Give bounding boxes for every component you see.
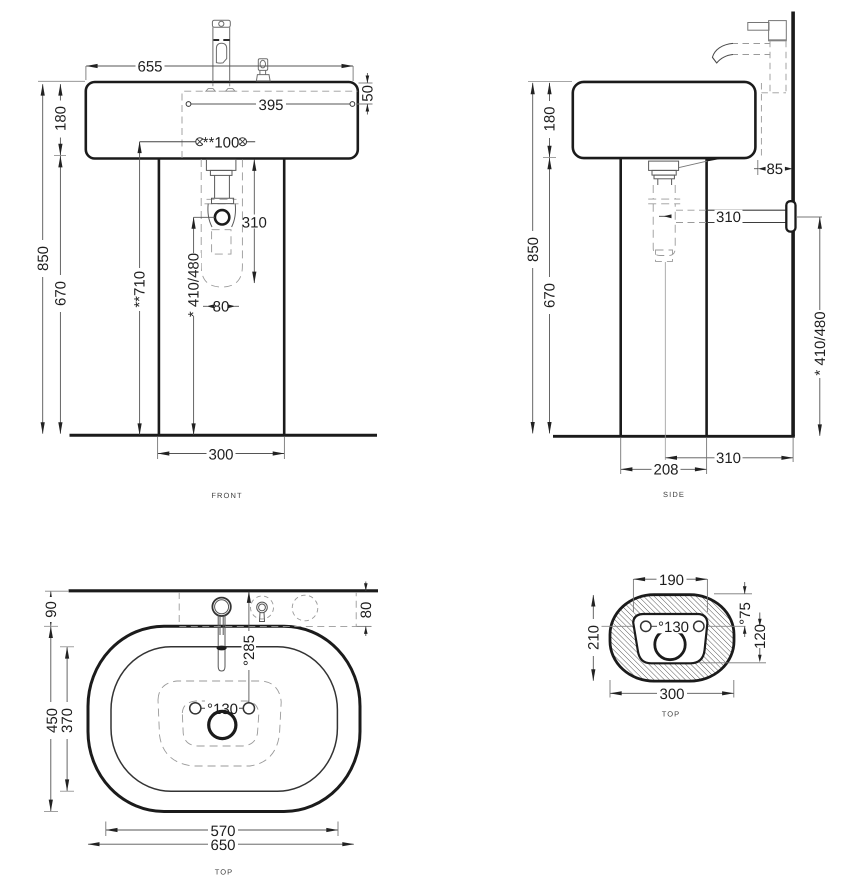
svg-text:180: 180 [542,106,559,131]
svg-text:850: 850 [525,237,542,262]
svg-text:TOP: TOP [215,868,234,877]
svg-text:°75: °75 [737,602,754,625]
svg-text:670: 670 [53,281,70,306]
svg-text:310: 310 [242,214,267,231]
svg-text:80: 80 [358,602,375,619]
svg-text:395: 395 [258,97,283,114]
svg-text:650: 650 [210,837,235,854]
svg-text:120: 120 [752,624,769,649]
svg-text:90: 90 [43,601,60,618]
svg-text:370: 370 [59,708,76,733]
svg-text:50: 50 [359,85,376,102]
svg-text:**710: **710 [132,271,149,308]
svg-text:85: 85 [766,161,783,178]
svg-text:310: 310 [716,450,741,467]
svg-text:180: 180 [53,106,70,131]
svg-text:655: 655 [137,59,162,76]
svg-text:210: 210 [585,625,602,650]
svg-text:850: 850 [35,246,52,271]
svg-text:190: 190 [659,572,684,589]
svg-text:TOP: TOP [662,710,681,719]
svg-text:FRONT: FRONT [211,491,242,500]
svg-text:* 410/480: * 410/480 [186,253,203,317]
svg-text:208: 208 [653,462,678,479]
svg-text:80: 80 [213,299,230,316]
svg-text:670: 670 [542,283,559,308]
svg-text:SIDE: SIDE [663,490,685,499]
svg-text:300: 300 [659,686,684,703]
svg-text:**100: **100 [203,134,240,151]
svg-text:°130: °130 [658,619,689,636]
svg-text:* 410/480: * 410/480 [812,311,829,375]
svg-text:°285: °285 [241,635,258,666]
svg-text:310: 310 [716,209,741,226]
svg-text:300: 300 [208,447,233,464]
